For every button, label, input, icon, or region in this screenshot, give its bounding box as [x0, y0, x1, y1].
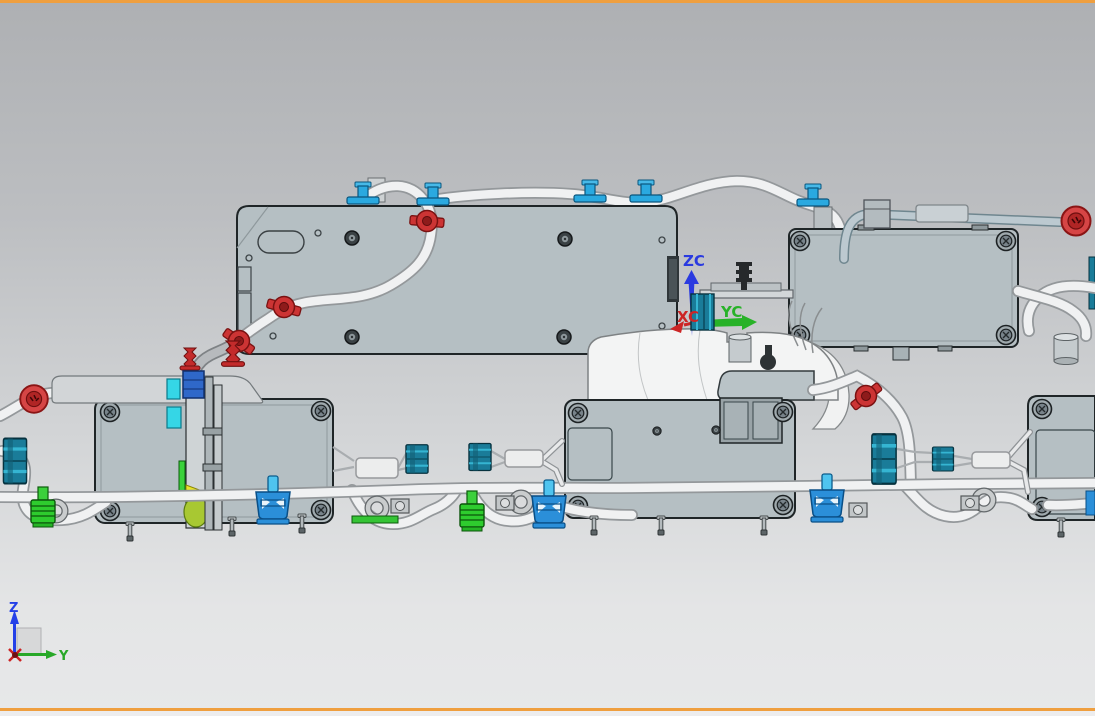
plate-hole: [270, 333, 276, 339]
corner-boss: [1033, 400, 1052, 419]
plate-screw: [558, 232, 572, 246]
wcs-zc-label: ZC: [683, 252, 705, 270]
corner-boss: [312, 402, 331, 421]
tube-clamp-block: [864, 200, 890, 228]
corner-boss: [774, 403, 793, 422]
module-tab: [854, 346, 868, 351]
plate-screw: [345, 231, 359, 245]
rail-ledge: [203, 428, 222, 435]
teal-connector[interactable]: [3, 439, 26, 484]
red-circular-connector[interactable]: [20, 385, 48, 413]
triad-origin: [12, 652, 18, 658]
wcs-xc-label: XC: [677, 308, 699, 326]
plate-hole: [659, 237, 665, 243]
cad-graphics-window[interactable]: ZC XC YC Z Y: [0, 0, 1095, 716]
module-bottom-center[interactable]: [565, 398, 795, 518]
cylinder-top: [1054, 334, 1078, 341]
corner-boss: [997, 326, 1016, 345]
inline-sleeve[interactable]: [356, 458, 398, 478]
cylinder-boss: [729, 337, 751, 362]
flat-bracket: [52, 376, 263, 403]
wcs-yc-label: YC: [720, 303, 742, 321]
viewport-border-bottom: [0, 708, 1095, 711]
teal-connector[interactable]: [406, 445, 428, 474]
plate-hole: [246, 255, 252, 261]
viewport-border-top: [0, 0, 1095, 3]
rail-bar: [205, 377, 213, 530]
module-body: [789, 229, 1018, 347]
tube-sleeve: [916, 205, 968, 222]
cylinder-top: [729, 334, 751, 340]
corner-boss: [569, 404, 588, 423]
housing-cap: [718, 371, 814, 400]
triad-y-label: Y: [58, 649, 69, 664]
teal-connector[interactable]: [469, 444, 491, 471]
tube-half-clamp[interactable]: [391, 499, 409, 513]
background-gradient: [0, 0, 1095, 716]
plate-hole: [315, 230, 321, 236]
teal-connector-stack[interactable]: [872, 434, 896, 484]
rail-bar: [214, 385, 222, 530]
corner-boss: [101, 403, 120, 422]
module-screw: [653, 427, 661, 435]
inline-sleeve[interactable]: [505, 450, 543, 467]
rail-ledge: [203, 464, 222, 471]
sub-box-cell: [724, 402, 748, 439]
tube-half-clamp[interactable]: [961, 496, 979, 510]
tube-bracket-stub: [814, 207, 832, 229]
module-screw: [712, 426, 720, 434]
blue-connector: [183, 371, 204, 398]
corner-boss: [791, 232, 810, 251]
cylinder-bottom: [1054, 358, 1078, 365]
module-stub: [893, 347, 909, 360]
plate-screw: [345, 330, 359, 344]
mounting-plate-large[interactable]: [237, 206, 679, 354]
blue-edge-connector[interactable]: [1086, 491, 1095, 515]
plate-hole: [659, 323, 665, 329]
tube-half-clamp[interactable]: [849, 503, 867, 517]
corner-boss: [312, 501, 331, 520]
corner-boss: [774, 496, 793, 515]
module-tab: [972, 225, 988, 230]
module-tab: [938, 346, 952, 351]
cyan-highlight-part: [167, 379, 180, 399]
green-bar-part: [179, 461, 185, 492]
triad-z-label: Z: [9, 601, 18, 616]
viewport-background: [0, 0, 1095, 716]
red-circular-connector[interactable]: [1062, 207, 1091, 236]
module-top-right[interactable]: [789, 225, 1018, 360]
plate-body: [237, 206, 677, 354]
corner-boss: [997, 232, 1016, 251]
cad-scene[interactable]: ZC XC YC Z Y: [0, 0, 1095, 716]
inline-sleeve[interactable]: [972, 452, 1010, 468]
statusbar-strip: [0, 711, 1095, 716]
teal-connector[interactable]: [933, 447, 954, 471]
bolt-shank: [765, 345, 772, 359]
tube-half-clamp[interactable]: [496, 496, 514, 510]
plate-edge-connector-inner: [669, 259, 677, 299]
green-strip-part[interactable]: [352, 516, 398, 523]
plate-screw: [557, 330, 571, 344]
cyan-highlight-part: [167, 407, 181, 428]
